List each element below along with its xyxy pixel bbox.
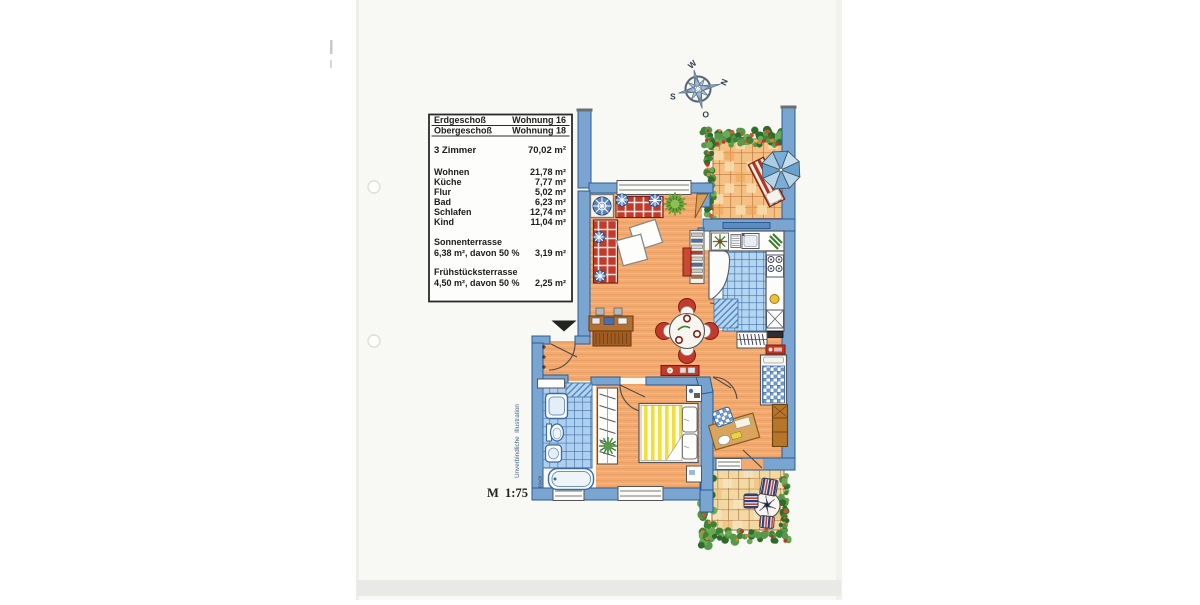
svg-text:60x60: 60x60 bbox=[538, 475, 543, 488]
svg-text:11,04 m²: 11,04 m² bbox=[530, 217, 566, 227]
svg-text:Erdgeschoß: Erdgeschoß bbox=[434, 115, 487, 125]
svg-text:4,50 m², davon 50 %: 4,50 m², davon 50 % bbox=[434, 278, 520, 288]
svg-text:M 1:75: M 1:75 bbox=[487, 486, 528, 500]
svg-text:S: S bbox=[670, 91, 677, 101]
svg-text:Küche: Küche bbox=[434, 177, 462, 187]
svg-text:Frühstücksterrasse: Frühstücksterrasse bbox=[434, 267, 518, 277]
svg-text:2,25 m²: 2,25 m² bbox=[535, 278, 566, 288]
svg-text:Wohnen: Wohnen bbox=[434, 167, 469, 177]
svg-text:7,77 m²: 7,77 m² bbox=[535, 177, 566, 187]
svg-text:12,74 m²: 12,74 m² bbox=[530, 207, 566, 217]
svg-text:6,38 m², davon 50 %: 6,38 m², davon 50 % bbox=[434, 248, 520, 258]
svg-text:Sonnenterrasse: Sonnenterrasse bbox=[434, 237, 502, 247]
svg-text:Schlafen: Schlafen bbox=[434, 207, 472, 217]
svg-text:Unverbindliche Illustration: Unverbindliche Illustration bbox=[514, 404, 521, 478]
svg-text:Bad: Bad bbox=[434, 197, 451, 207]
svg-text:Wohnung 18: Wohnung 18 bbox=[512, 126, 566, 136]
svg-text:6,23 m²: 6,23 m² bbox=[535, 197, 566, 207]
svg-text:3,19 m²: 3,19 m² bbox=[535, 248, 566, 258]
svg-text:Kind: Kind bbox=[434, 217, 454, 227]
svg-text:O: O bbox=[702, 109, 709, 119]
svg-text:3 Zimmer: 3 Zimmer bbox=[434, 145, 477, 156]
svg-text:70,02 m²: 70,02 m² bbox=[528, 145, 566, 156]
svg-text:Flur: Flur bbox=[434, 187, 451, 197]
svg-text:Wohnung 16: Wohnung 16 bbox=[512, 115, 566, 125]
svg-text:5,02 m²: 5,02 m² bbox=[535, 187, 566, 197]
svg-text:21,78 m²: 21,78 m² bbox=[530, 167, 566, 177]
svg-text:Obergeschoß: Obergeschoß bbox=[434, 126, 493, 136]
